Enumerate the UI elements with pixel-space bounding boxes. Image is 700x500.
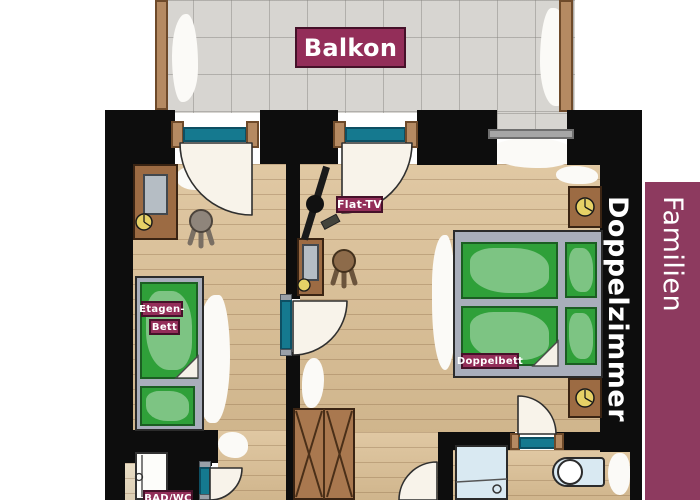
bathroom-right-door-glass	[519, 437, 556, 449]
torn-edge	[218, 432, 248, 458]
bathroom-label: BAD/WC	[143, 490, 193, 500]
balcony-label: Balkon	[295, 27, 406, 68]
tv-cabinet-panel	[302, 244, 319, 281]
bunk-bed-pillow	[140, 386, 195, 426]
interior-door-glass	[280, 300, 292, 350]
door-frame-cap	[199, 494, 211, 500]
window-sill	[488, 129, 574, 139]
bunk-bed-label-line1: Etagen-	[141, 301, 183, 317]
banner-text-regular: Familien	[657, 196, 688, 312]
double-bed-mattress	[461, 242, 558, 299]
door-frame-cap	[280, 349, 292, 356]
floor-plan: Balkon Flat-TV Etagen- Bett Doppelbett B…	[0, 0, 700, 500]
banner-text-bold: Doppelzimmer	[602, 196, 633, 422]
torn-edge	[608, 453, 630, 495]
double-bed-label: Doppelbett	[461, 353, 519, 369]
wardrobe-mirror	[143, 174, 168, 215]
door-post	[554, 433, 564, 450]
balcony-glass-door-left	[183, 127, 247, 142]
wall	[105, 110, 133, 458]
tv-label: Flat-TV	[336, 196, 383, 213]
wall	[630, 452, 642, 500]
bunk-bed-label-line2: Bett	[149, 319, 180, 335]
torn-edge	[172, 14, 198, 102]
door-post	[246, 121, 259, 148]
shower	[455, 445, 508, 500]
room-type-banner: Familien Doppelzimmer	[645, 182, 700, 500]
wall	[105, 458, 125, 500]
wall	[260, 110, 338, 164]
door-post	[405, 121, 418, 148]
closet	[293, 408, 355, 500]
sink	[552, 457, 605, 487]
balcony-railing-left	[155, 0, 168, 110]
balcony-glass-door-middle	[345, 127, 406, 142]
torn-edge	[176, 166, 214, 190]
wall	[417, 110, 497, 165]
balcony-railing-right	[559, 0, 573, 112]
torn-edge	[556, 166, 598, 184]
bathroom-left-door-glass	[199, 467, 211, 496]
wall	[438, 432, 453, 500]
